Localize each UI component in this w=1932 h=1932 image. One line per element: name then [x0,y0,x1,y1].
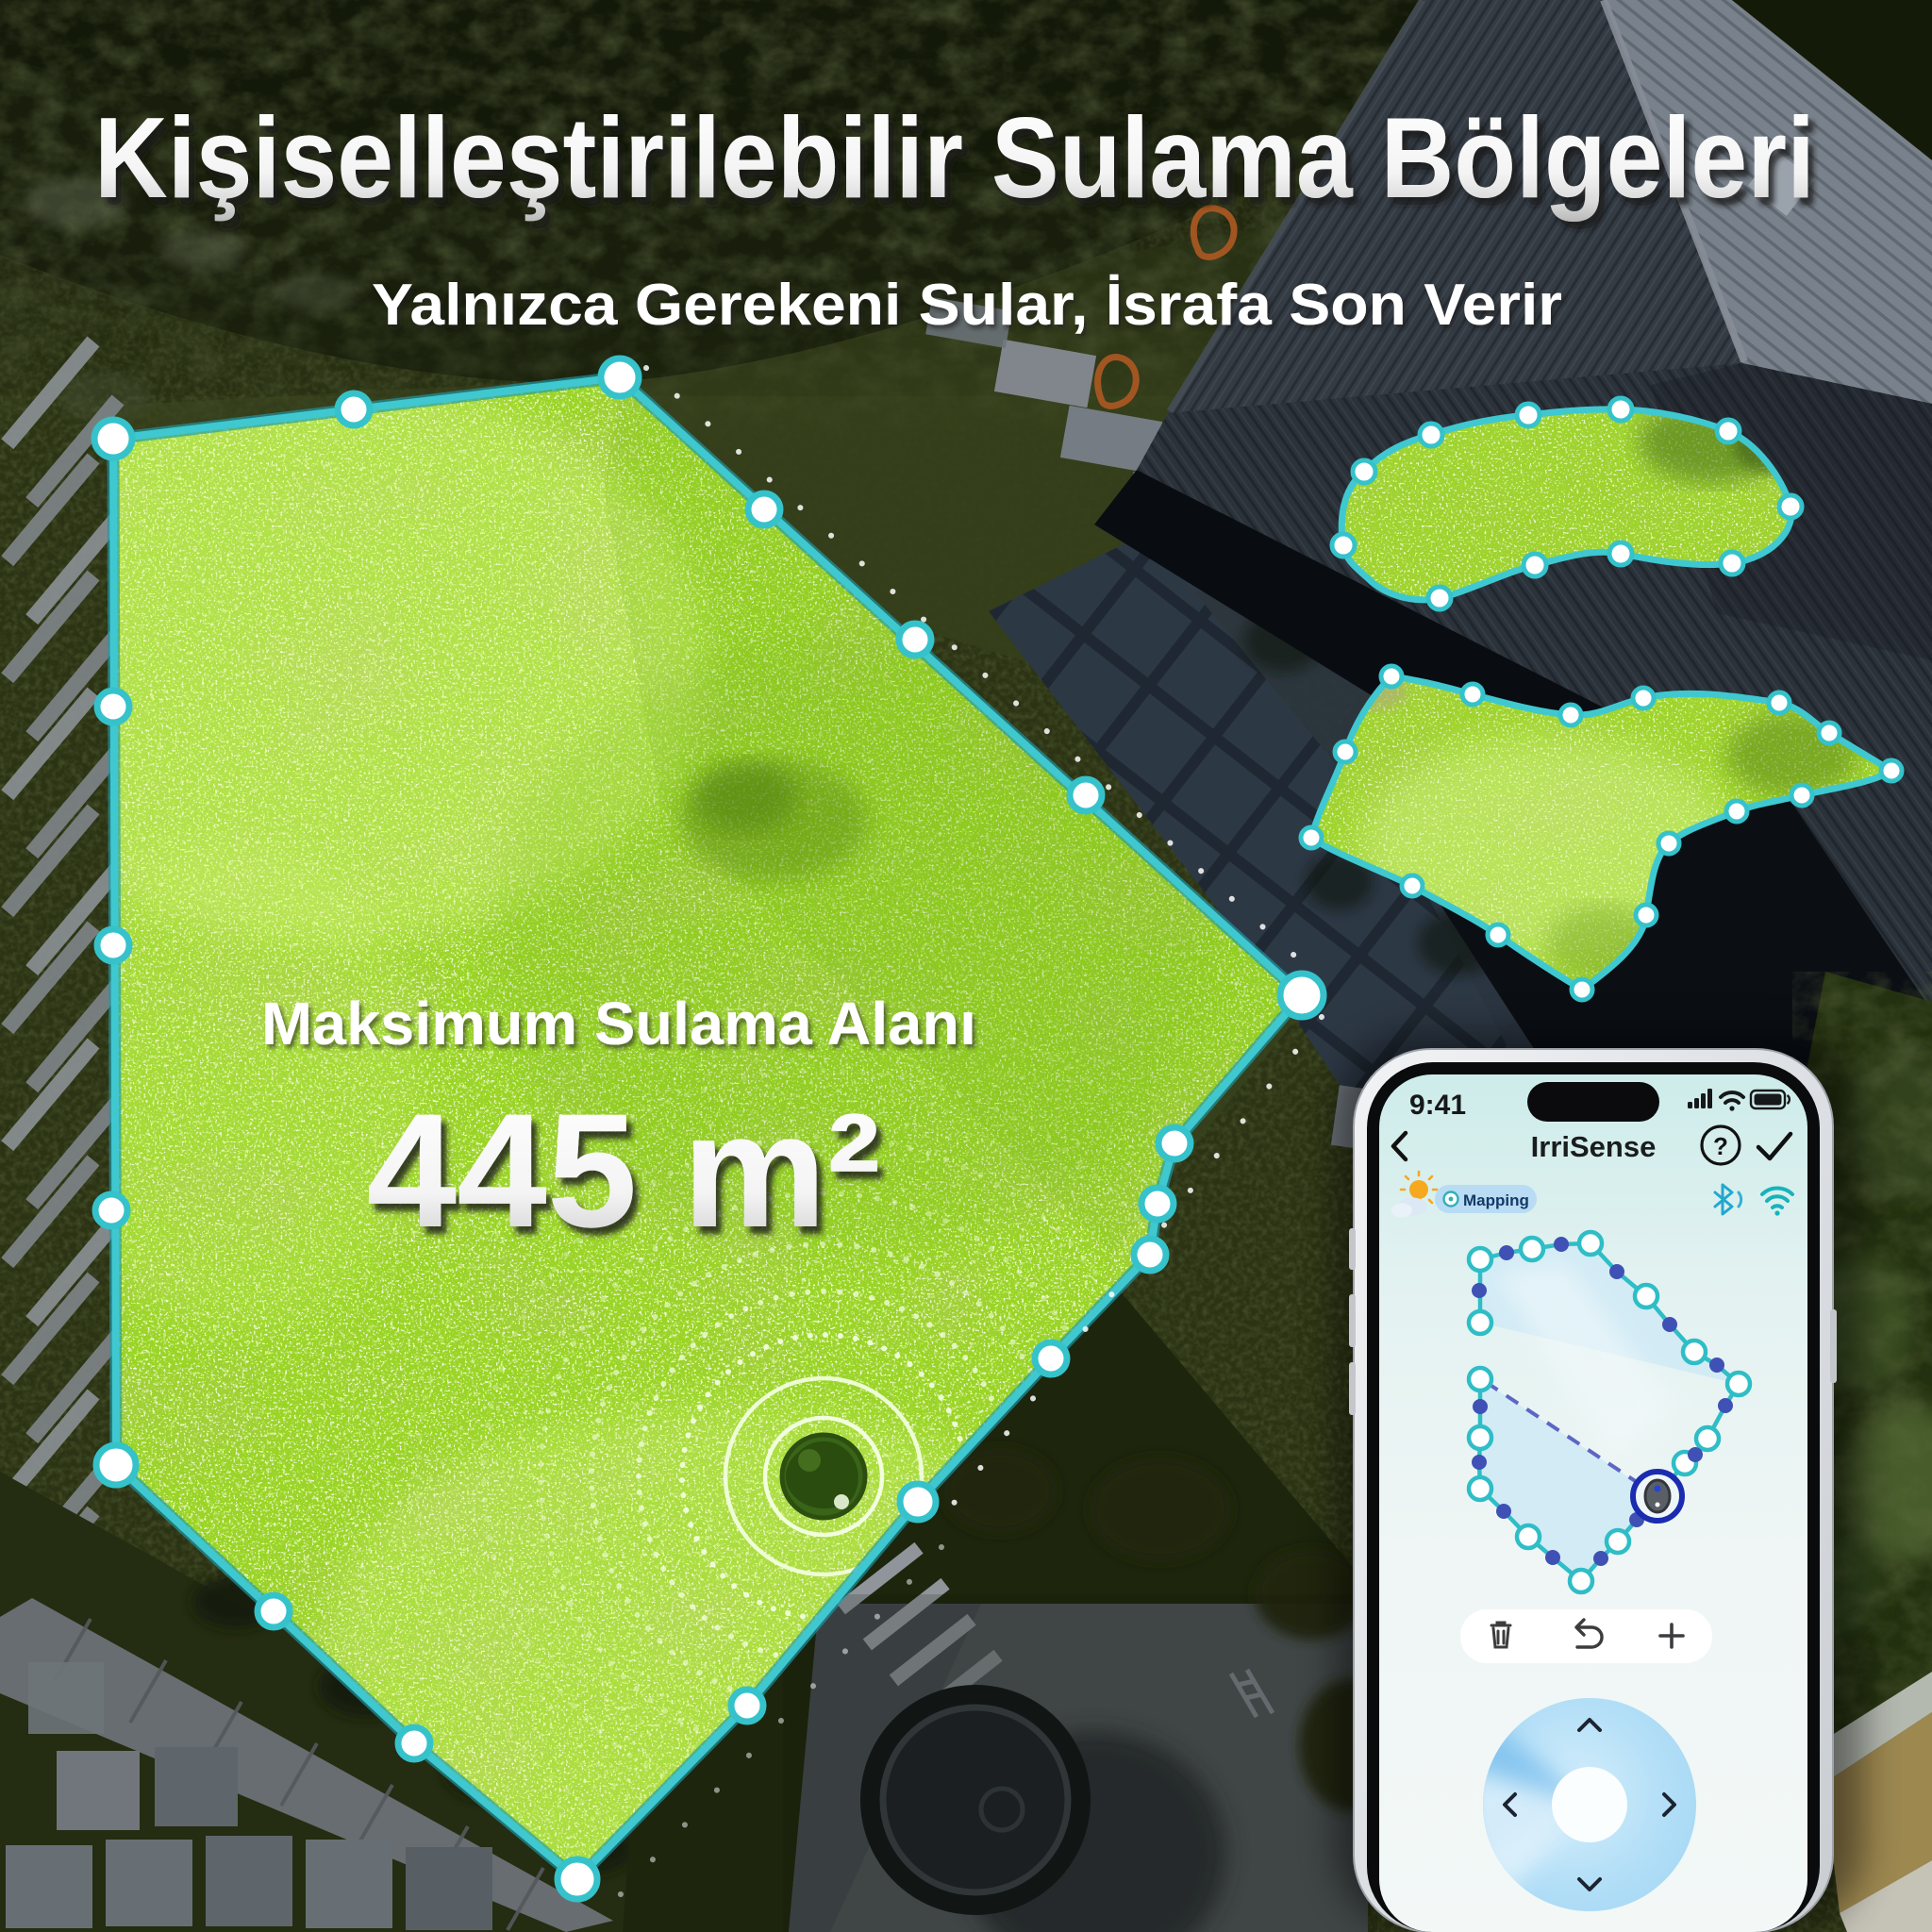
svg-text:IrriSense: IrriSense [1531,1130,1657,1163]
svg-text:Kişiselleştirilebilir Sulama B: Kişiselleştirilebilir Sulama Bölgeleri [94,93,1815,222]
svg-text:9:41: 9:41 [1409,1090,1466,1121]
svg-text:?: ? [1713,1132,1728,1160]
svg-text:Maksimum Sulama Alanı: Maksimum Sulama Alanı [261,990,976,1058]
svg-text:Yalnızca Gerekeni Sular, İsraf: Yalnızca Gerekeni Sular, İsrafa Son Veri… [372,273,1562,338]
svg-text:445 m²: 445 m² [367,1080,881,1261]
svg-text:Mapping: Mapping [1463,1191,1529,1209]
